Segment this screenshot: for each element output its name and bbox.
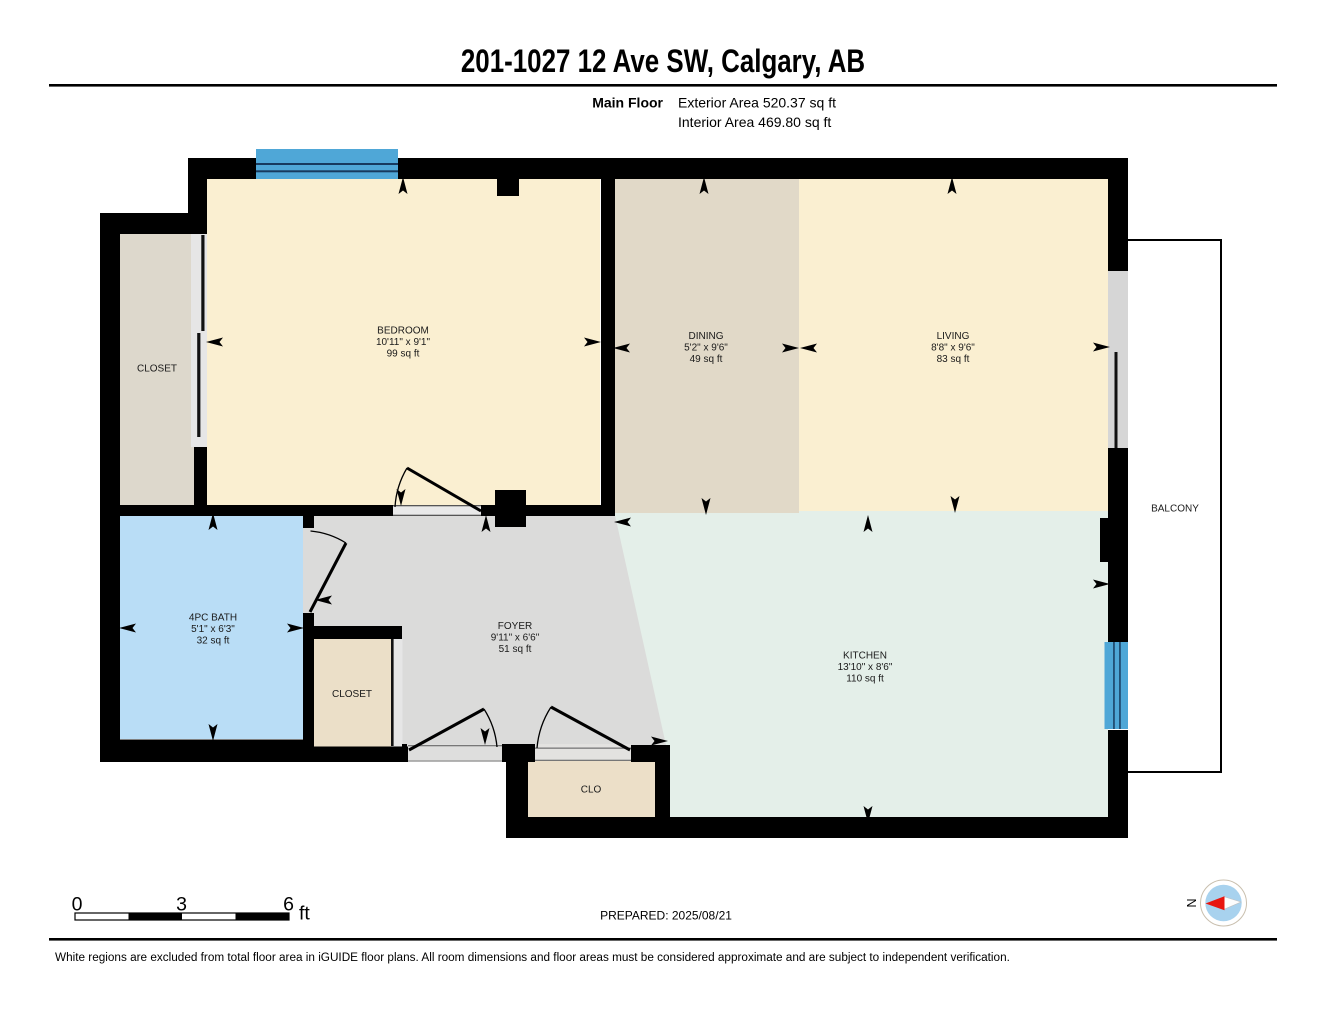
svg-text:4PC BATH: 4PC BATH xyxy=(189,613,237,624)
svg-text:CLOSET: CLOSET xyxy=(137,364,177,375)
svg-text:5'1" x 6'3": 5'1" x 6'3" xyxy=(191,624,235,635)
svg-text:99 sq ft: 99 sq ft xyxy=(387,349,420,360)
svg-text:9'11" x 6'6": 9'11" x 6'6" xyxy=(491,633,540,644)
svg-text:49 sq ft: 49 sq ft xyxy=(690,354,723,365)
svg-text:Interior Area 469.80 sq ft: Interior Area 469.80 sq ft xyxy=(678,114,831,130)
svg-text:White regions are excluded fro: White regions are excluded from total fl… xyxy=(55,951,1010,964)
svg-text:KITCHEN: KITCHEN xyxy=(843,651,887,662)
svg-text:13'10" x 8'6": 13'10" x 8'6" xyxy=(838,662,893,673)
svg-text:201-1027 12 Ave SW, Calgary, A: 201-1027 12 Ave SW, Calgary, AB xyxy=(461,45,865,80)
svg-text:83 sq ft: 83 sq ft xyxy=(937,354,970,365)
svg-text:5'2" x 9'6": 5'2" x 9'6" xyxy=(684,343,728,354)
svg-text:LIVING: LIVING xyxy=(937,331,970,342)
svg-text:51 sq ft: 51 sq ft xyxy=(499,644,532,655)
svg-text:8'8" x 9'6": 8'8" x 9'6" xyxy=(931,343,975,354)
svg-text:6: 6 xyxy=(283,894,294,916)
svg-text:BALCONY: BALCONY xyxy=(1151,504,1199,515)
svg-text:Main Floor: Main Floor xyxy=(592,95,663,111)
svg-text:PREPARED: 2025/08/21: PREPARED: 2025/08/21 xyxy=(600,909,732,923)
svg-text:32 sq ft: 32 sq ft xyxy=(197,636,230,647)
svg-text:3: 3 xyxy=(176,894,187,916)
svg-text:ft: ft xyxy=(299,903,310,925)
svg-text:0: 0 xyxy=(72,894,83,916)
svg-text:Exterior Area 520.37 sq ft: Exterior Area 520.37 sq ft xyxy=(678,95,836,111)
svg-text:FOYER: FOYER xyxy=(498,621,532,632)
svg-text:110 sq ft: 110 sq ft xyxy=(846,674,884,685)
svg-text:10'11" x 9'1": 10'11" x 9'1" xyxy=(376,337,431,348)
svg-text:CLOSET: CLOSET xyxy=(332,689,372,700)
svg-text:DINING: DINING xyxy=(689,331,724,342)
svg-text:CLO: CLO xyxy=(581,785,602,796)
svg-text:BEDROOM: BEDROOM xyxy=(377,326,429,337)
svg-text:N: N xyxy=(1185,898,1199,907)
